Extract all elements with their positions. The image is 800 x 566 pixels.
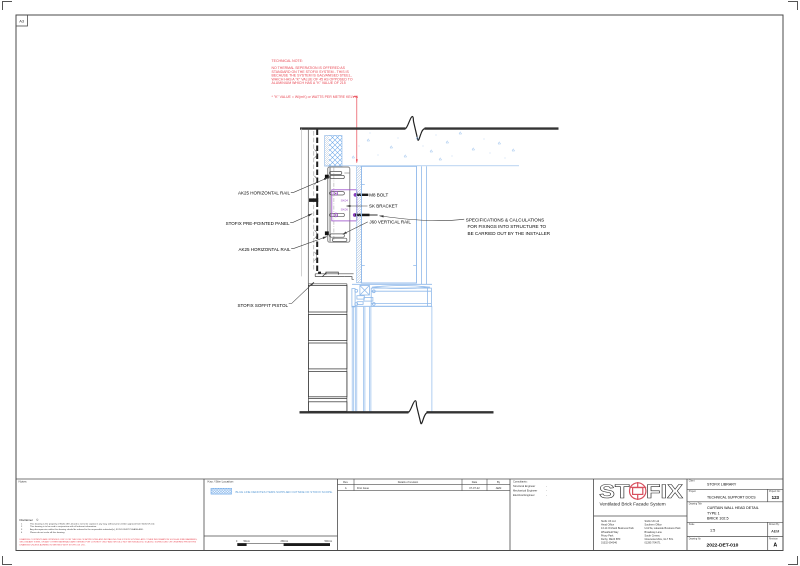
svg-text:Date: Date [472,480,478,484]
svg-text:BLUE LINE DENOTES ITEMS SUPPLI: BLUE LINE DENOTES ITEMS SUPPLIED OUTSIDE… [236,490,333,494]
svg-text:Key / Site Location: Key / Site Location [208,480,234,484]
svg-text:13-14 Orchard Business Park: 13-14 Orchard Business Park [601,527,635,530]
svg-text:Any discrepancies within this: Any discrepancies within this drawing sh… [30,528,144,531]
svg-text:Please do not scale off this d: Please do not scale off this drawing. [30,531,65,534]
svg-text:SECONDARY STEEL OR ANY OTHER M: SECONDARY STEEL OR ANY OTHER MATERIALS A… [20,541,197,544]
svg-text:AK25 HORIZONTAL RAIL: AK25 HORIZONTAL RAIL [238,190,291,195]
svg-text:ALUMINIUM WHICH HAS A "K" VALU: ALUMINIUM WHICH HAS A "K" VALUE OF 215 [272,81,346,85]
svg-text:Consultants:: Consultants: [513,479,528,483]
svg-text:TECHNICAL NOTE:: TECHNICAL NOTE: [272,59,303,63]
svg-text:ST: ST [599,481,630,503]
svg-text:01332 694046: 01332 694046 [601,542,618,545]
svg-text:1:5: 1:5 [710,529,715,533]
svg-text:A: A [345,486,347,490]
svg-text:M8 BOLT: M8 BOLT [369,192,388,197]
svg-text:Electrical Engineer: Electrical Engineer [513,493,535,497]
svg-text:Details of revision: Details of revision [398,480,419,484]
svg-text:01285 704071: 01285 704071 [645,542,662,545]
svg-text:Drawing Title: Drawing Title [689,503,703,506]
svg-text:This drawing is the property o: This drawing is the property of Stofix U… [30,522,155,525]
svg-text:STOFIX SOFFIT PISTOL: STOFIX SOFFIT PISTOL [237,303,288,308]
svg-text:TECHNICAL SUPPORT DOCS: TECHNICAL SUPPORT DOCS [707,496,756,500]
svg-text:TYPE 1: TYPE 1 [707,511,720,515]
svg-text:DRAWING CONTENTS ARE INTENDED: DRAWING CONTENTS ARE INTENDED ONLY FOR T… [20,538,198,541]
svg-text:Head Office: Head Office [601,524,615,527]
svg-text:BE CARRIED OUT BY THE INSTALLE: BE CARRIED OUT BY THE INSTALLER [468,231,551,236]
svg-text:123: 123 [772,495,780,500]
svg-text:Client: Client [689,480,695,483]
svg-text:A: A [773,543,777,549]
svg-text:SK BRACKET: SK BRACKET [369,204,398,209]
svg-text:Project: Project [689,490,697,493]
svg-text:Structural Engineer: Structural Engineer [513,484,535,488]
svg-text:Gloucestershire, GL7 5XL: Gloucestershire, GL7 5XL [645,538,674,541]
svg-text:Mechanical Engineer: Mechanical Engineer [513,489,537,493]
svg-text:-: - [546,494,547,497]
svg-text:Stofix UK Ltd: Stofix UK Ltd [601,520,616,523]
svg-text:FOR FIXINGS INTO STRUCTURE TO: FOR FIXINGS INTO STRUCTURE TO [468,224,547,229]
svg-text:FIX: FIX [646,481,683,503]
svg-text:Disclaimer ©: Disclaimer © [20,518,40,522]
svg-text:SK04: SK04 [341,198,349,202]
svg-text:AEM: AEM [771,529,779,533]
svg-text:2022-DET-010: 2022-DET-010 [707,543,739,549]
svg-text:Southern Office: Southern Office [645,524,663,527]
svg-text:STOFIX LIBRARY: STOFIX LIBRARY [707,483,737,487]
svg-text:Revision: Revision [769,539,779,541]
svg-text:J60 VERTICAL RAIL: J60 VERTICAL RAIL [369,219,411,224]
svg-text:A3: A3 [19,19,25,24]
svg-text:This drawing is to be read in: This drawing is to be read in conjunctio… [30,525,97,528]
svg-text:* "K" VALUE = W/(mK) or WATTS: * "K" VALUE = W/(mK) or WATTS PER METRE … [272,95,359,99]
svg-text:Ventilated Brick Facade System: Ventilated Brick Facade System [600,502,666,507]
svg-text:Wheatfield Way: Wheatfield Way [601,531,619,534]
svg-text:STOFIX PRE-POINTED PANEL: STOFIX PRE-POINTED PANEL [226,221,290,226]
svg-text:AEM: AEM [496,486,502,490]
svg-text:CURTAIN WALL HEAD DETAIL: CURTAIN WALL HEAD DETAIL [707,506,759,510]
svg-text:South Cerney: South Cerney [645,534,661,537]
svg-text:DRAWING UNLESS AGREED IN WRITI: DRAWING UNLESS AGREED IN WRITING WITH ST… [20,543,86,546]
svg-text:BRICK 102.5: BRICK 102.5 [707,517,729,521]
svg-text:50mm: 50mm [244,541,250,543]
svg-text:07-07-22: 07-07-22 [469,486,480,490]
svg-text:Broadway Lane: Broadway Lane [645,531,663,534]
svg-text:Drawing No: Drawing No [689,538,702,541]
svg-text:AK25 HORIZONTAL RAIL: AK25 HORIZONTAL RAIL [238,247,291,252]
svg-text:Rev.: Rev. [343,480,348,484]
svg-text:SK06: SK06 [341,207,349,211]
svg-text:Unit 5a, Lakeside Business Par: Unit 5a, Lakeside Business Park [645,527,682,530]
svg-text:Drawn By:: Drawn By: [769,523,780,526]
svg-text:First Issue: First Issue [357,486,370,490]
svg-text:250mm: 250mm [281,541,289,543]
svg-text:Notes: Notes [19,480,28,484]
svg-text:-: - [546,490,547,493]
svg-text:Priory Park: Priory Park [601,534,614,537]
svg-text:Project No:: Project No: [769,490,781,493]
svg-text:SPECIFICATIONS & CALCULATIONS: SPECIFICATIONS & CALCULATIONS [466,217,544,222]
svg-text:Derby, DE24 8HF: Derby, DE24 8HF [601,538,621,541]
svg-text:Stofix UK Ltd: Stofix UK Ltd [645,520,660,523]
svg-text:Scale: Scale [689,524,695,526]
svg-text:-: - [546,485,547,488]
svg-text:500mm: 500mm [325,541,333,543]
